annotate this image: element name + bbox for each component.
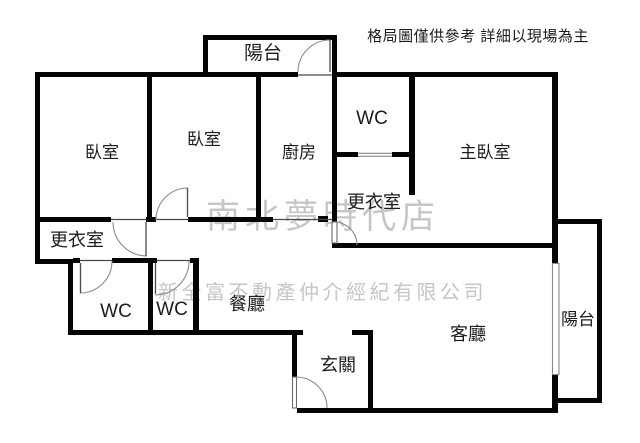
room-label-closet-left: 更衣室	[50, 230, 104, 250]
room-label-living-room: 客廳	[450, 324, 486, 344]
floor-plan-page: 南北夢時代店 新全富不動產仲介經紀有限公司	[0, 0, 640, 443]
room-label-bedroom-left: 臥室	[85, 143, 119, 162]
room-label-bedroom-middle: 臥室	[187, 130, 221, 149]
room-label-dining-room: 餐廳	[229, 294, 265, 314]
room-label-entryway: 玄關	[320, 355, 356, 375]
room-label-closet-right: 更衣室	[347, 192, 401, 212]
closet-door-leaf	[332, 222, 337, 243]
room-label-wc-bottom-left: WC	[100, 301, 132, 322]
floor-plan-canvas: 南北夢時代店 新全富不動產仲介經紀有限公司	[0, 0, 640, 443]
entry-door-leaf	[293, 377, 297, 408]
room-label-balcony-top: 陽台	[244, 42, 282, 64]
watermark-company-name: 新全富不動產仲介經紀有限公司	[158, 281, 487, 304]
room-label-wc-bottom-middle: WC	[156, 299, 188, 320]
room-label-master-bedroom: 主臥室	[460, 143, 511, 162]
sliding-door	[553, 264, 560, 375]
room-label-wc-top: WC	[356, 108, 388, 129]
disclaimer-text: 格局圖僅供參考 詳細以現場為主	[367, 28, 589, 45]
room-label-balcony-right: 陽台	[561, 310, 595, 329]
room-label-kitchen: 廚房	[282, 142, 316, 162]
